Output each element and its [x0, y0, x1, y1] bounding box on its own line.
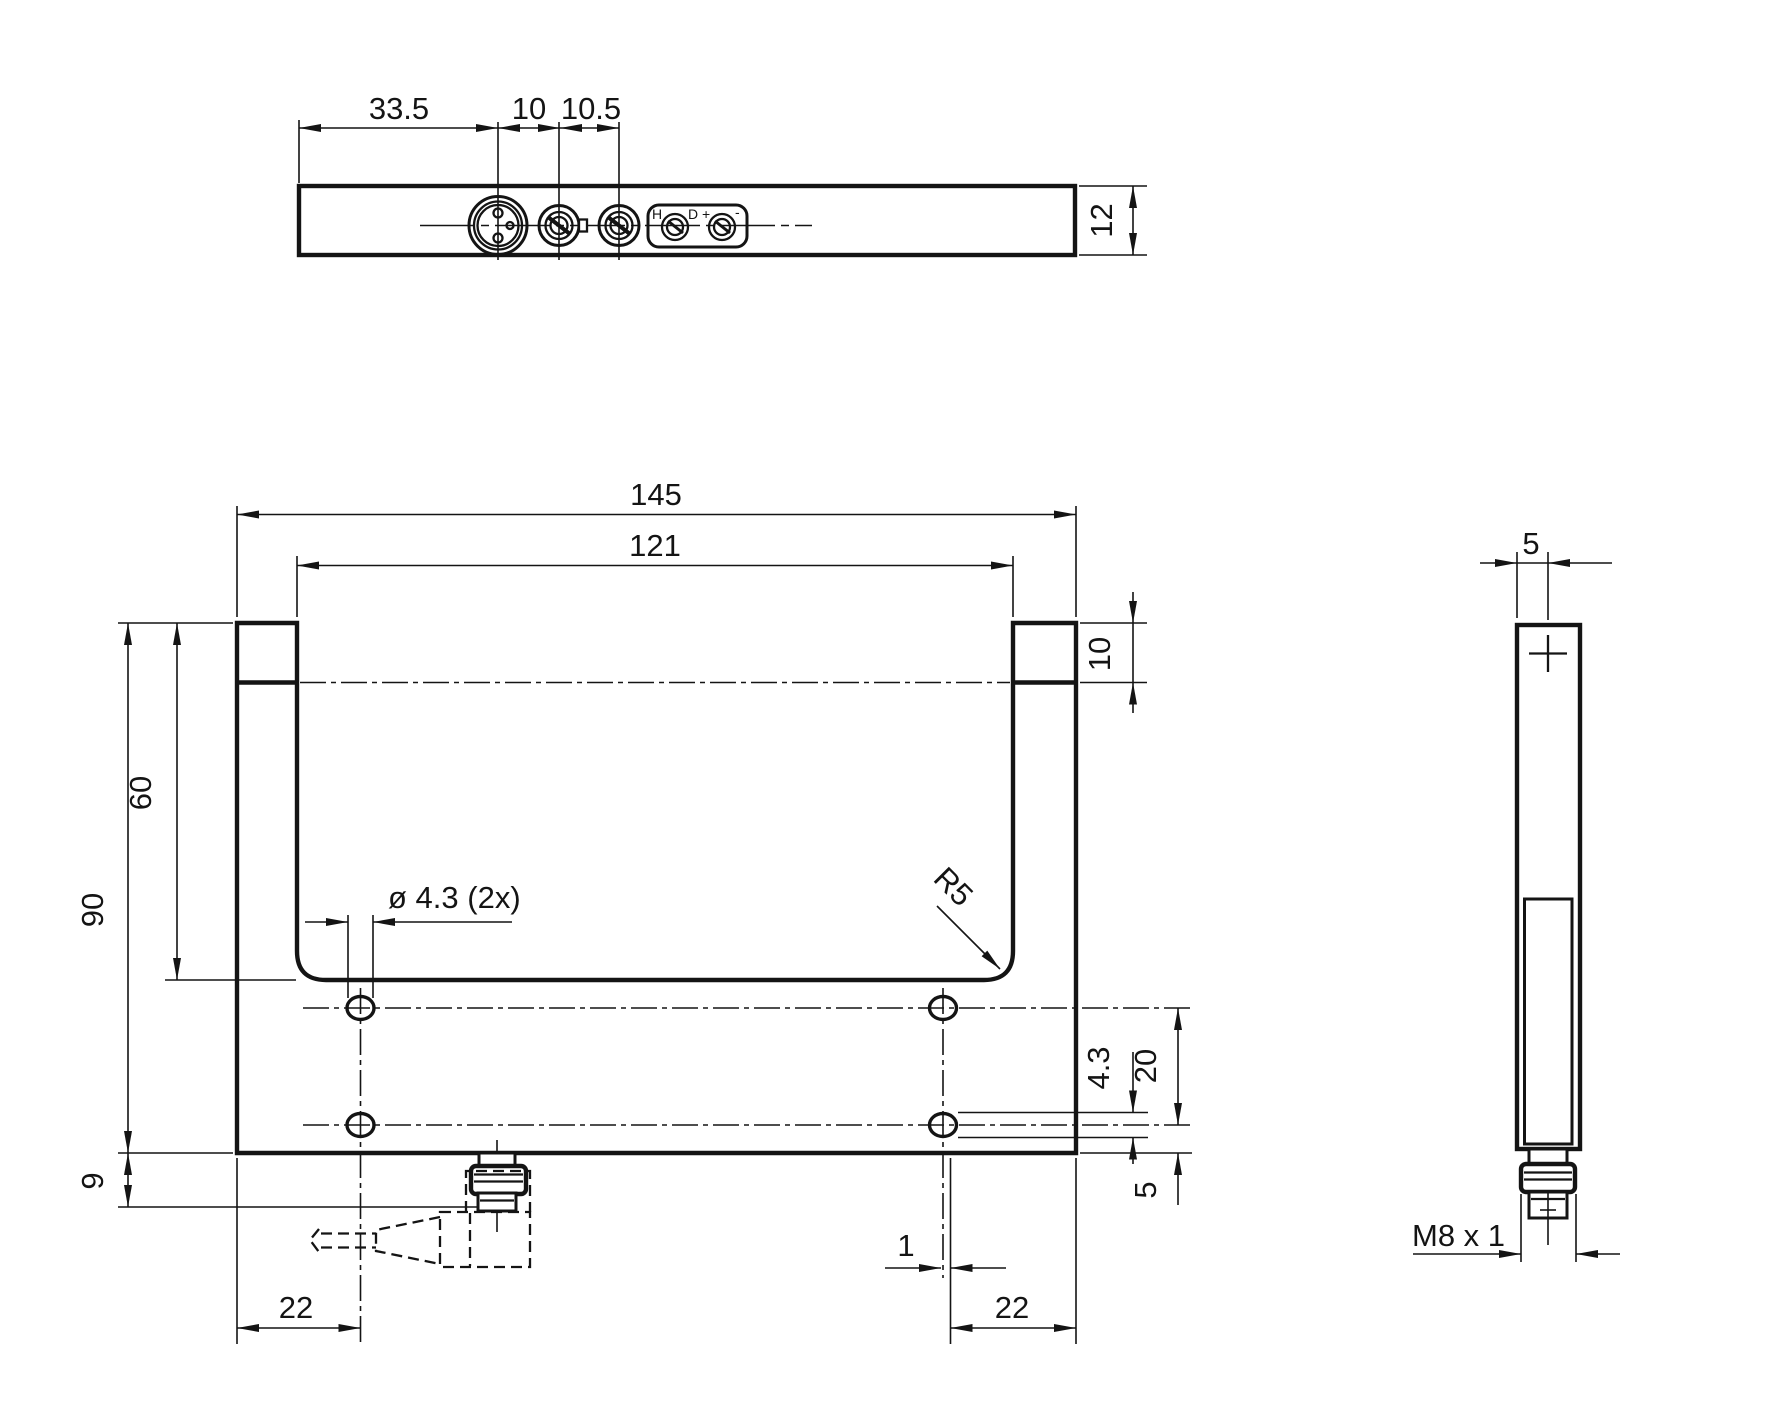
dim-label-4-3: 4.3 — [1081, 1046, 1116, 1089]
side-view: 5 M8 x 1 — [1412, 526, 1620, 1262]
m8-connector-side-icon — [1521, 1149, 1575, 1245]
fork-sensor-dimension-drawing: H D + - 33.5 10 10.5 12 — [0, 0, 1772, 1417]
thread-callout-label: M8 x 1 — [1412, 1218, 1505, 1253]
dim-label-5-side: 5 — [1522, 526, 1539, 561]
dim-label-5-right: 5 — [1128, 1181, 1163, 1198]
dim-label-12: 12 — [1084, 203, 1119, 237]
dim-label-10-5: 10.5 — [561, 91, 621, 126]
dim-label-60: 60 — [123, 776, 158, 810]
dim-label-22-right: 22 — [995, 1290, 1029, 1325]
panel-label-h: H — [652, 206, 662, 222]
dim-label-9: 9 — [75, 1172, 110, 1189]
dim-label-33-5: 33.5 — [369, 91, 429, 126]
top-view: H D + - 33.5 10 10.5 12 — [299, 91, 1147, 260]
dim-label-121: 121 — [629, 528, 681, 563]
side-view-dimensions: 5 — [1480, 526, 1612, 620]
front-view: 145 121 10 90 60 9 — [75, 477, 1192, 1345]
dim-label-10-top: 10 — [512, 91, 546, 126]
panel-label-d-plus: D + — [688, 206, 710, 222]
dim-label-1: 1 — [897, 1228, 914, 1263]
hole-diameter-callout: ø 4.3 (2x) — [388, 880, 521, 915]
dim-label-22-left: 22 — [279, 1290, 313, 1325]
dim-label-20: 20 — [1128, 1049, 1163, 1083]
dim-label-145: 145 — [630, 477, 682, 512]
dim-label-10-arm: 10 — [1082, 637, 1117, 671]
engineering-drawing-page: H D + - 33.5 10 10.5 12 — [0, 0, 1772, 1417]
trimmer-potentiometer-2-icon — [599, 206, 639, 246]
dim-label-90: 90 — [75, 893, 110, 927]
thread-callout: M8 x 1 — [1412, 1194, 1620, 1262]
radius-callout-r5: R5 — [927, 860, 980, 913]
panel-label-minus: - — [735, 204, 740, 220]
